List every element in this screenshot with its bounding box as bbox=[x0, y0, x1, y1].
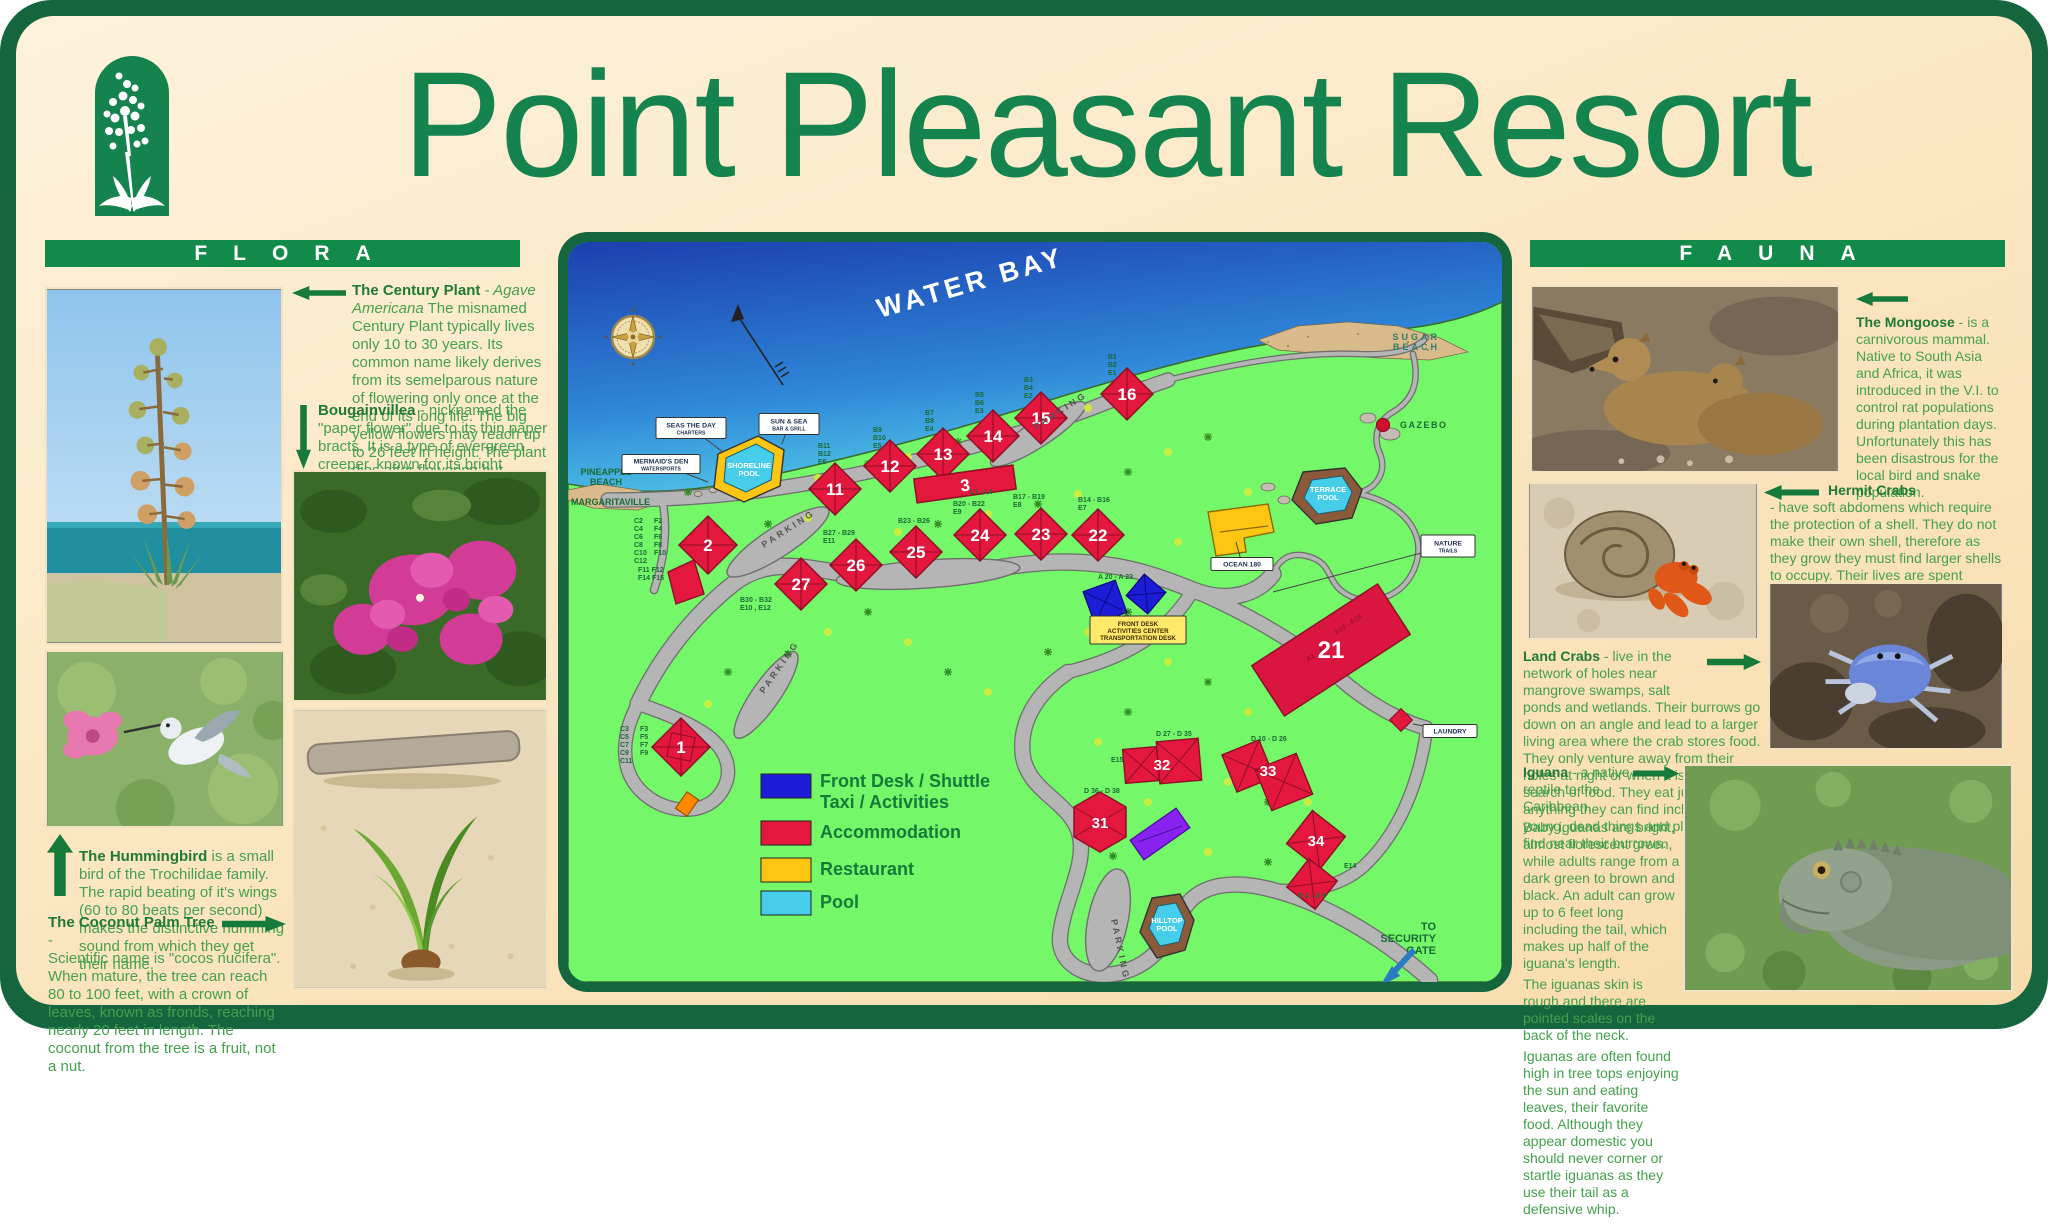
svg-text:1: 1 bbox=[676, 738, 685, 757]
unit-label: D 1 - D 9 bbox=[1298, 893, 1326, 900]
legend-label: Restaurant bbox=[820, 859, 914, 879]
svg-text:33: 33 bbox=[1260, 763, 1277, 780]
map-canvas: SHORELINEPOOLTERRACEPOOLHILLTOPPOOL11121… bbox=[568, 242, 1502, 982]
coconut-body: Scientific name is "cocos nucifera". Whe… bbox=[48, 950, 280, 1075]
unit-label: E15 bbox=[1111, 757, 1124, 764]
iguana-p2: The iguanas skin is rough and there are … bbox=[1523, 976, 1681, 1044]
svg-text:25: 25 bbox=[907, 543, 926, 562]
iguana-p3: Iguanas are often found high in tree top… bbox=[1523, 1048, 1681, 1218]
svg-text:31: 31 bbox=[1092, 815, 1109, 832]
svg-text:32: 32 bbox=[1154, 757, 1171, 774]
svg-text:23: 23 bbox=[1032, 525, 1051, 544]
unit-label: B3B4E2 bbox=[1024, 377, 1033, 400]
svg-text:21: 21 bbox=[1318, 637, 1345, 664]
svg-text:OCEAN 180: OCEAN 180 bbox=[1223, 562, 1261, 569]
svg-text:24: 24 bbox=[971, 526, 990, 545]
svg-text:22: 22 bbox=[1089, 526, 1108, 545]
svg-text:12: 12 bbox=[881, 457, 900, 476]
svg-text:14: 14 bbox=[984, 427, 1003, 446]
century-plant-name: The Century Plant bbox=[352, 282, 480, 299]
map-svg: SHORELINEPOOLTERRACEPOOLHILLTOPPOOL11121… bbox=[568, 242, 1502, 982]
land-crab-name: Land Crabs bbox=[1523, 648, 1600, 664]
fauna-header-label: FAUNA bbox=[1653, 242, 1881, 266]
hermit-crab-name: Hermit Crabs bbox=[1828, 482, 1916, 498]
svg-text:27: 27 bbox=[792, 575, 811, 594]
hummingbird-name: The Hummingbird bbox=[79, 848, 207, 865]
page-title: Point Pleasant Resort bbox=[205, 38, 2008, 210]
svg-text:34: 34 bbox=[1308, 833, 1325, 850]
century-plant-logo-icon bbox=[95, 56, 169, 216]
svg-text:11: 11 bbox=[826, 480, 844, 499]
resort-sign: Point Pleasant Resort FLORA bbox=[0, 0, 2048, 1029]
legend-label: Taxi / Activities bbox=[820, 792, 949, 812]
hermit-crab-photo bbox=[1527, 482, 1759, 640]
gazebo-label: GAZEBO bbox=[1400, 420, 1448, 430]
legend-item: Pool bbox=[761, 891, 859, 915]
unit-label: D 10 - D 26 bbox=[1251, 736, 1287, 743]
unit-label: B7B8E4 bbox=[925, 410, 934, 433]
unit-label: B5B6E3 bbox=[975, 392, 984, 415]
svg-text:13: 13 bbox=[934, 445, 953, 464]
unit-label: D 36 - D 38 bbox=[1084, 788, 1120, 795]
svg-text:LAUNDRY: LAUNDRY bbox=[1434, 729, 1467, 736]
svg-text:2: 2 bbox=[703, 536, 712, 555]
legend-item: Restaurant bbox=[761, 858, 914, 882]
mongoose-body: - is a carnivorous mammal. Native to Sou… bbox=[1856, 314, 1999, 500]
margaritaville-label: MARGARITAVILLE bbox=[571, 497, 650, 507]
svg-text:SUN & SEABAR & GRILL: SUN & SEABAR & GRILL bbox=[770, 418, 807, 432]
century-plant-photo bbox=[45, 287, 283, 645]
fauna-header: FAUNA bbox=[1530, 240, 2005, 267]
resort-map: SHORELINEPOOLTERRACEPOOLHILLTOPPOOL11121… bbox=[558, 232, 1512, 992]
unit-label: F11 F12F14 F15 bbox=[638, 567, 664, 582]
iguana-name: Iguana bbox=[1523, 764, 1568, 780]
flora-header: FLORA bbox=[45, 240, 520, 267]
svg-text:16: 16 bbox=[1118, 385, 1137, 404]
coconut-text: The Coconut Palm Tree - Scientific name … bbox=[48, 914, 286, 1086]
gazebo-building bbox=[1377, 419, 1390, 432]
svg-text:MERMAID'S DENWATERSPORTS: MERMAID'S DENWATERSPORTS bbox=[634, 458, 689, 472]
unit-label: B1B2E1 bbox=[1108, 354, 1117, 377]
coconut-palm-photo bbox=[292, 708, 548, 990]
mongoose-text: The Mongoose - is a carnivorous mammal. … bbox=[1856, 292, 2006, 511]
mongoose-photo bbox=[1530, 285, 1840, 473]
laundry-label: LAUNDRY bbox=[1413, 724, 1477, 738]
iguana-text: Iguana - a native reptile to the Caribbe… bbox=[1523, 764, 1681, 1228]
sugar-beach-label: SUGARBEACH bbox=[1392, 332, 1440, 352]
legend-label: Pool bbox=[820, 892, 859, 912]
unit-label: L1 - L4 bbox=[970, 489, 993, 496]
unit-label: A 20 - A 23 bbox=[1098, 574, 1133, 581]
land-crab-photo bbox=[1768, 582, 2004, 750]
unit-label: B30 - B32E10 , E12 bbox=[740, 597, 772, 612]
unit-label: D 27 - D 35 bbox=[1156, 731, 1192, 738]
hummingbird-photo bbox=[45, 650, 285, 828]
svg-text:26: 26 bbox=[847, 556, 866, 575]
unit-label: F3F5F7F9 bbox=[640, 726, 648, 757]
legend-item: Accommodation bbox=[761, 821, 961, 845]
legend-label: Front Desk / Shuttle bbox=[820, 771, 990, 791]
arrow-right-icon bbox=[1633, 766, 1679, 781]
arrow-right-icon bbox=[1707, 654, 1761, 670]
bougainvillea-photo bbox=[292, 470, 548, 702]
resort-logo bbox=[95, 56, 169, 216]
coconut-dash: - bbox=[48, 932, 53, 949]
unit-label: E14 bbox=[1344, 863, 1357, 870]
unit-label: B23 - B26 bbox=[898, 518, 930, 525]
arrow-left-icon bbox=[1856, 292, 1908, 306]
iguana-p1: Baby iguanas are bright, almost floresce… bbox=[1523, 819, 1681, 972]
iguana-photo bbox=[1683, 764, 2013, 992]
mongoose-name: The Mongoose bbox=[1856, 314, 1955, 330]
legend-label: Accommodation bbox=[820, 822, 961, 842]
bougainvillea-name: Bougainvillea bbox=[318, 402, 416, 419]
coconut-name: The Coconut Palm Tree bbox=[48, 914, 215, 931]
flora-header-label: FLORA bbox=[168, 242, 396, 266]
